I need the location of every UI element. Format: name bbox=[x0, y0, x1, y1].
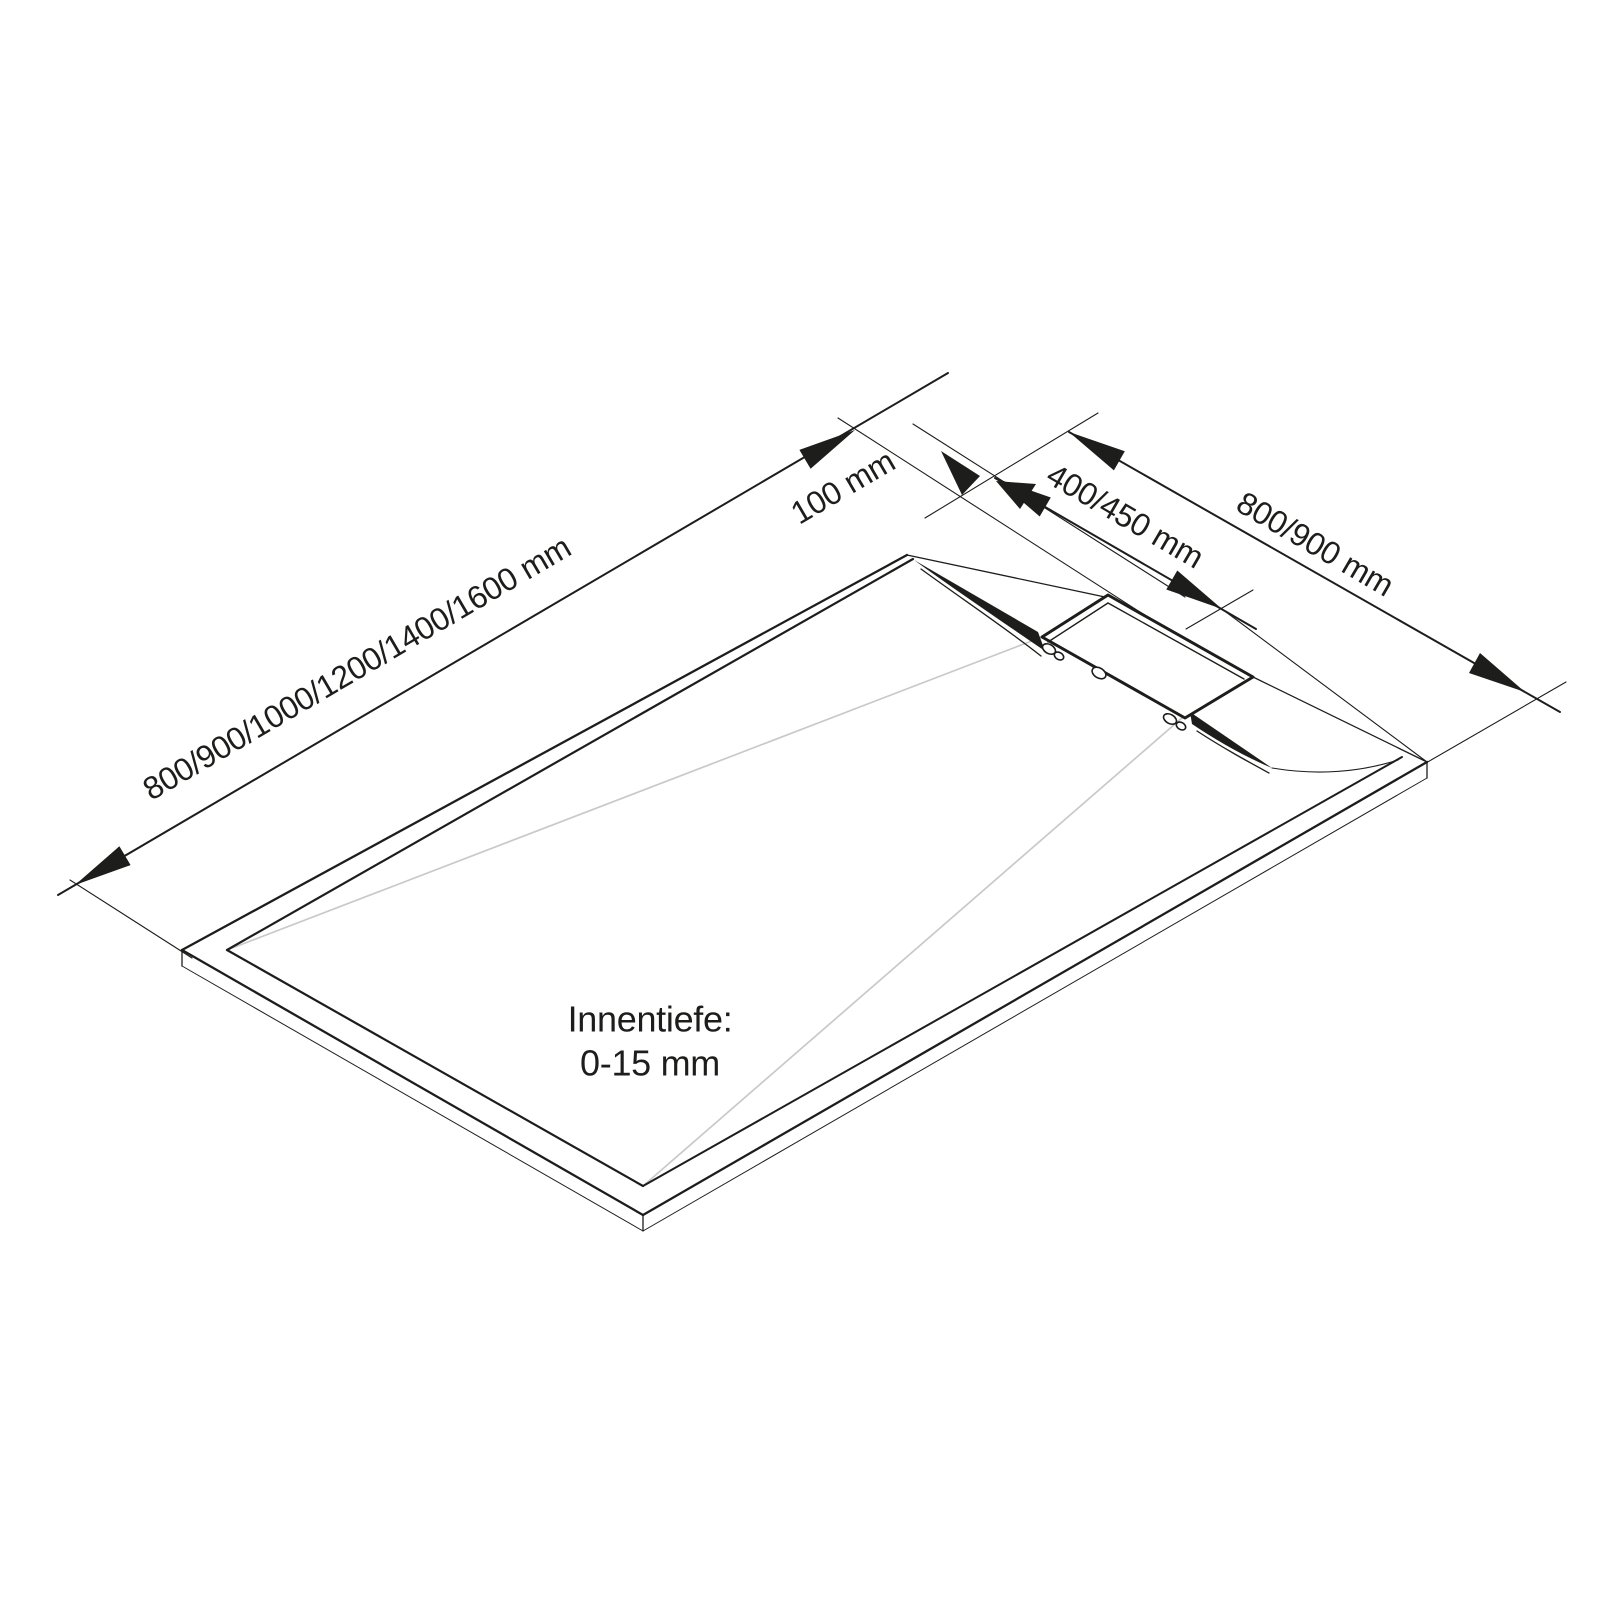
arrowhead-drain-end bbox=[1166, 571, 1222, 610]
slope-crease-bottom bbox=[643, 717, 1183, 1186]
inner-depth-label: Innentiefe: bbox=[568, 999, 733, 1040]
tray-edge-to-drain-right bbox=[1253, 677, 1427, 762]
extension-line-drain-right-long bbox=[1222, 609, 1427, 762]
extension-line-left-corner bbox=[70, 880, 192, 958]
dimension-label-drain-length: 400/450 mm bbox=[1041, 456, 1210, 575]
drain-cover bbox=[1041, 595, 1253, 732]
drain-channel-wedge-right bbox=[1190, 712, 1272, 768]
tray-outer-edge-bottom-right bbox=[643, 762, 1427, 1215]
dimension-label-width: 800/900 mm bbox=[1231, 484, 1400, 603]
arrowhead-width-start bbox=[1069, 432, 1125, 470]
tray-inner-edge-bottom-right bbox=[643, 757, 1402, 1186]
dimension-length: 800/900/1000/1200/1400/1600 mm bbox=[58, 373, 948, 895]
floor-slope-lines bbox=[227, 637, 1183, 1186]
dimension-label-edge-offset: 100 mm bbox=[785, 442, 901, 531]
drain-channel-rim-left bbox=[921, 569, 1041, 656]
tray-inner-edge-top-left bbox=[227, 559, 913, 950]
drain-channel-wedge-left bbox=[914, 560, 1045, 651]
tray-outer-edge-top-left bbox=[182, 555, 907, 950]
drain-channel-rim-right bbox=[1197, 731, 1269, 773]
technical-drawing: 800/900/1000/1200/1400/1600 mm 100 mm 40… bbox=[0, 0, 1600, 1600]
tray-outer-edge-bottom-left bbox=[182, 950, 643, 1215]
inner-depth-annotation: Innentiefe: 0-15 mm bbox=[568, 999, 733, 1084]
drain-cover-plate bbox=[1042, 595, 1253, 718]
extension-line-right-corner bbox=[1419, 682, 1566, 767]
drawing-canvas: 800/900/1000/1200/1400/1600 mm 100 mm 40… bbox=[0, 0, 1600, 1600]
inner-depth-value: 0-15 mm bbox=[580, 1043, 720, 1084]
dimension-label-length: 800/900/1000/1200/1400/1600 mm bbox=[137, 529, 577, 808]
arrowhead-width-end bbox=[1469, 653, 1525, 692]
arrowhead-length-start bbox=[75, 846, 131, 885]
